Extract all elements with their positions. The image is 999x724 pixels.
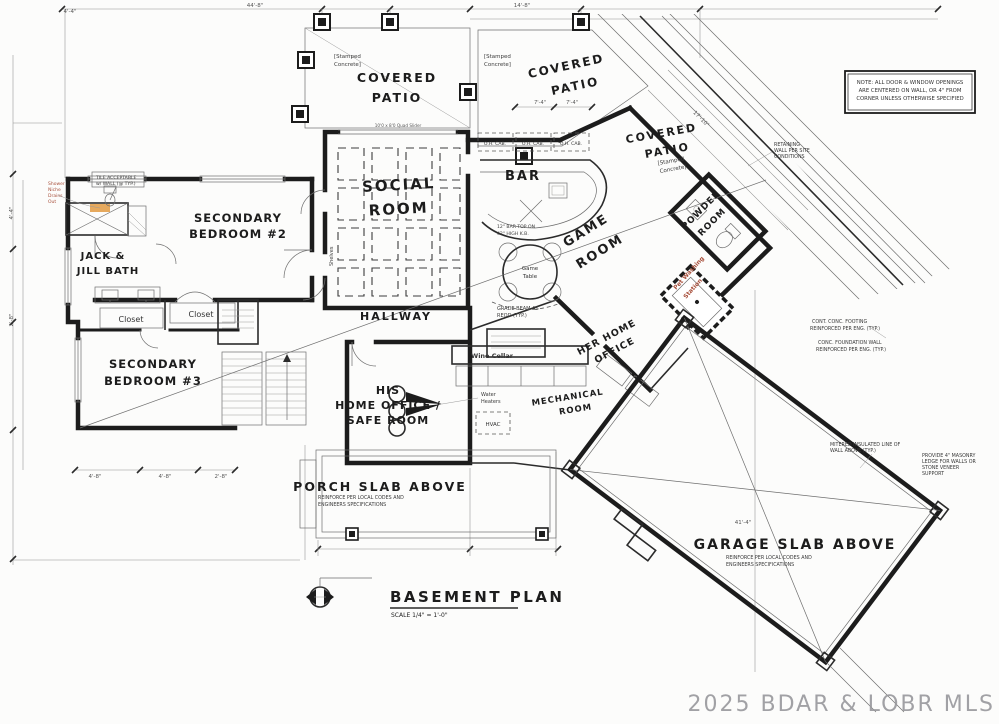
- shower-niche-note: Drains: [48, 193, 63, 199]
- masonry-note: SUPPORT: [922, 471, 944, 477]
- porch-slab-label: PORCH SLAB ABOVE: [293, 479, 467, 494]
- room-label-jack-jill-bath: JILL BATH: [76, 266, 139, 277]
- stamped-concrete-note: Concrete]: [484, 62, 511, 68]
- dim-label: 41'-4": [735, 520, 752, 526]
- dim-label: 2'-8": [9, 313, 15, 326]
- dim-label: 7'-4": [534, 100, 546, 106]
- floor-plan-sheet: 4'-4" 44'-8" 14'-8" 7'-4" 7'-4" 17'-10" …: [0, 0, 999, 724]
- bar-top-note: 42" HIGH K.B.: [497, 231, 529, 237]
- foundation-note: REINFORCED PER ENG. (TYP.): [816, 347, 886, 353]
- room-label-his-office: HIS: [376, 384, 400, 397]
- room-label-covered-patio-2: PATIO: [550, 74, 601, 98]
- shower-niche-note: Out: [48, 199, 56, 205]
- dim-label: 4'-4": [9, 206, 15, 219]
- dim-label: 4'-8": [158, 474, 171, 480]
- grade-beam-note: REQD (TYP.): [497, 313, 527, 319]
- room-label-closet-2: Closet: [189, 310, 214, 319]
- dim-label: 7'-4": [566, 100, 578, 106]
- retaining-note: RETAINING: [774, 142, 800, 148]
- dimension-frame: [10, 6, 941, 672]
- quad-slider-note: 10'0 x 8'0 Quad Slider: [375, 123, 422, 128]
- mitered-note: MITERED INSULATED LINE OF: [830, 442, 901, 448]
- water-heaters-label: Water: [481, 392, 497, 398]
- stamped-concrete-note: Concrete]: [334, 62, 361, 68]
- plan-title: BASEMENT PLAN: [390, 588, 565, 606]
- stamped-concrete-note: [Stamped: [484, 54, 511, 60]
- hvac-label: HVAC: [485, 422, 500, 428]
- note-line: CORNER UNLESS OTHERWISE SPECIFIED: [856, 96, 963, 102]
- dim-label: 44'-8": [247, 3, 264, 9]
- room-label-social-room: SOCIAL: [362, 174, 436, 196]
- title-block: BASEMENT PLAN SCALE 1/4" = 1'-0": [390, 588, 565, 619]
- section-line: [80, 180, 766, 428]
- room-label-secondary-bedroom-2: BEDROOM #2: [189, 227, 287, 241]
- room-label-secondary-bedroom-3: SECONDARY: [109, 357, 197, 371]
- mitered-note: WALL ABOVE (TYP.): [830, 448, 876, 454]
- plan-scale: SCALE 1/4" = 1'-0": [391, 612, 448, 619]
- room-label-wine-cellar: Wine Cellar: [471, 352, 514, 360]
- oh-cab-label: O.H. CAB.: [522, 141, 544, 147]
- general-note-box: NOTE: ALL DOOR & WINDOW OPENINGS ARE CEN…: [845, 71, 975, 113]
- porch-reinforce-note: ENGINEERS SPECIFICATIONS: [318, 502, 386, 508]
- oh-cab-label: O.H. CAB.: [560, 141, 582, 147]
- tile-note: TILE ACCEPTABLE: [95, 175, 137, 181]
- water-heaters-label: Heaters: [481, 399, 501, 405]
- dim-label: 4'-8": [88, 474, 101, 480]
- room-label-closet-1: Closet: [119, 315, 144, 324]
- footing-note: CONT. CONC. FOOTING: [812, 319, 867, 325]
- basement-floor-plan-drawing: 4'-4" 44'-8" 14'-8" 7'-4" 7'-4" 17'-10" …: [0, 0, 999, 724]
- section-marker: [306, 578, 372, 607]
- social-room-ceiling-grid: [338, 148, 460, 296]
- room-label-bar: BAR: [505, 169, 541, 184]
- garage-reinforce-note: ENGINEERS SPECIFICATIONS: [726, 562, 794, 568]
- foundation-note: CONC. FOUNDATION WALL: [818, 340, 882, 346]
- bar-top-note: 12" BAR TOP ON: [497, 224, 535, 230]
- garage-reinforce-note: REINFORCE PER LOCAL CODES AND: [726, 555, 812, 561]
- room-label-his-office: HOME OFFICE /: [335, 399, 441, 412]
- masonry-note: STONE VENEER: [922, 465, 960, 471]
- stamped-concrete-note: [Stamped: [334, 54, 361, 60]
- masonry-note: LEDGE FOR WALLS OR: [922, 459, 977, 465]
- shower-niche-note: Shower: [48, 181, 65, 187]
- note-line: ARE CENTERED ON WALL, OR 4" FROM: [859, 88, 962, 94]
- dim-label: 2'-8": [214, 474, 227, 480]
- retaining-note: CONDITIONS: [774, 154, 805, 160]
- room-label-secondary-bedroom-2: SECONDARY: [194, 211, 282, 225]
- closet-vanity: [95, 287, 238, 330]
- retaining-note: WALL PER SITE: [774, 148, 810, 154]
- dim-label: 14'-8": [514, 3, 531, 9]
- oh-cab-label: O.H. CAB.: [484, 141, 506, 147]
- room-label-mechanical: ROOM: [558, 402, 593, 417]
- room-label-social-room: ROOM: [368, 198, 429, 219]
- room-label-jack-jill-bath: JACK &: [80, 251, 126, 262]
- grade-beam-note: GRADE BEAM AS: [497, 306, 539, 312]
- room-label-his-office: SAFE ROOM: [347, 414, 429, 427]
- garage-slab-label: GARAGE SLAB ABOVE: [694, 537, 897, 553]
- game-table-label: Game: [522, 266, 539, 272]
- room-label-covered-patio-1: PATIO: [372, 90, 423, 105]
- porch-reinforce-note: REINFORCE PER LOCAL CODES AND: [318, 495, 404, 501]
- mls-watermark: 2025 BDAR & LOBR MLS: [688, 692, 995, 717]
- shower-niche-note: Niche: [48, 187, 61, 193]
- room-label-covered-patio-1: COVERED: [357, 70, 437, 85]
- room-label-secondary-bedroom-3: BEDROOM #3: [104, 374, 202, 388]
- masonry-note: PROVIDE 4" MASONRY: [922, 453, 976, 459]
- dim-label: 4'-4": [63, 9, 76, 15]
- note-line: NOTE: ALL DOOR & WINDOW OPENINGS: [857, 80, 964, 86]
- game-table-label: Table: [522, 274, 538, 280]
- tile-note: w/ WALL (@ TYP.): [96, 181, 136, 187]
- shelves-label: Shelves: [329, 246, 335, 266]
- room-label-hallway: HALLWAY: [360, 310, 432, 323]
- garage-slab: [550, 309, 949, 686]
